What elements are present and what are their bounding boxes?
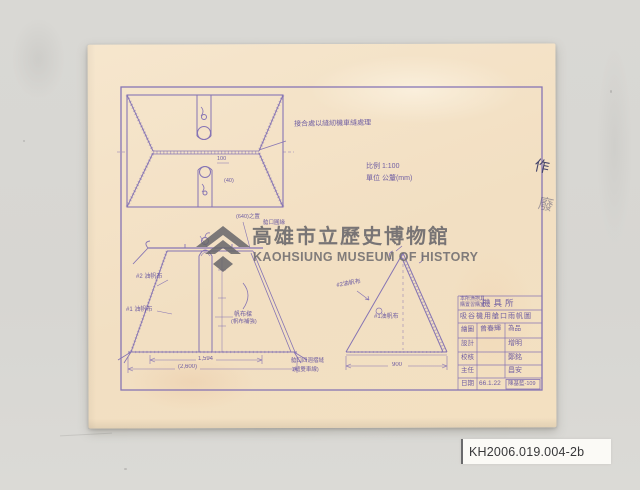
titleblock-unit-name: 機具所 (482, 299, 517, 308)
scale-note: 比例 1:100 (366, 163, 399, 170)
background-scratch (60, 433, 112, 437)
titleblock-row-value2-drafter: 為品 (508, 326, 521, 333)
elev-label-canvas1: #1 油帆布 (126, 307, 152, 313)
titleblock-date-label: 日期 (461, 381, 474, 388)
plan-dim-b: (40) (224, 179, 234, 185)
elev-label-beam-line1: 帆布樑 (234, 312, 252, 318)
elev-label-beam-line2: (帆布補強) (231, 320, 257, 326)
elev-note-top1: (640)之置 (236, 215, 260, 221)
elev-label-canvas2: #2 油帆布 (136, 274, 162, 280)
titleblock-row-label-drafter: 繪圖 (461, 327, 474, 334)
elev-dim-outer: (2,600) (178, 364, 197, 370)
seam-note: 接合處以縫紉機車縫處理 (294, 120, 371, 128)
titleblock-row-label-director: 主任 (461, 368, 474, 375)
catalog-number-text: KH2006.019.004-2b (463, 445, 584, 459)
plan-dim-a: 100 (217, 157, 226, 163)
watermark-chinese-title: 高雄市立歷史博物館 (252, 227, 450, 247)
titleblock-row-value2-designer: 增明 (508, 340, 522, 347)
elev-dim-inner: 1,594 (198, 356, 213, 362)
dust-speck (23, 140, 25, 142)
dust-speck (124, 468, 127, 470)
titleblock-row-label-designer: 設計 (461, 341, 474, 348)
titleblock-row-label-checker: 校核 (461, 355, 474, 362)
unit-note: 單位 公釐(mm) (366, 175, 412, 182)
titleblock-row-value2-checker: 鄭銘 (508, 354, 522, 361)
titleblock-drawing-title: 吸谷機用艙口雨帆圖 (460, 313, 532, 320)
museum-photo-of-blueprint: { "watermark": { "cn": "高雄市立歷史博物館", "en"… (0, 0, 640, 490)
titleblock-stamp: 陳基藍-109 (508, 382, 536, 388)
side-dim-base: 900 (392, 362, 402, 368)
elev-corner-note2: (縫雙車線) (293, 368, 319, 374)
void-mark-char1: 作 (533, 158, 551, 176)
watermark-english-title: KAOHSIUNG MUSEUM OF HISTORY (253, 251, 478, 264)
catalog-number-label: KH2006.019.004-2b (461, 439, 611, 464)
void-mark-char2: 廢 (537, 196, 555, 214)
dust-speck (610, 90, 612, 93)
titleblock-row-value-drafter: 曾春輝 (480, 325, 501, 333)
titleblock-row-value2-director: 昌安 (508, 367, 522, 374)
elev-corner-note1: 艙口四週摺縫 (291, 359, 324, 365)
titleblock-date-value: 66.1.22 (479, 381, 501, 388)
side-label-canvas1: #1油帆布 (374, 314, 399, 320)
